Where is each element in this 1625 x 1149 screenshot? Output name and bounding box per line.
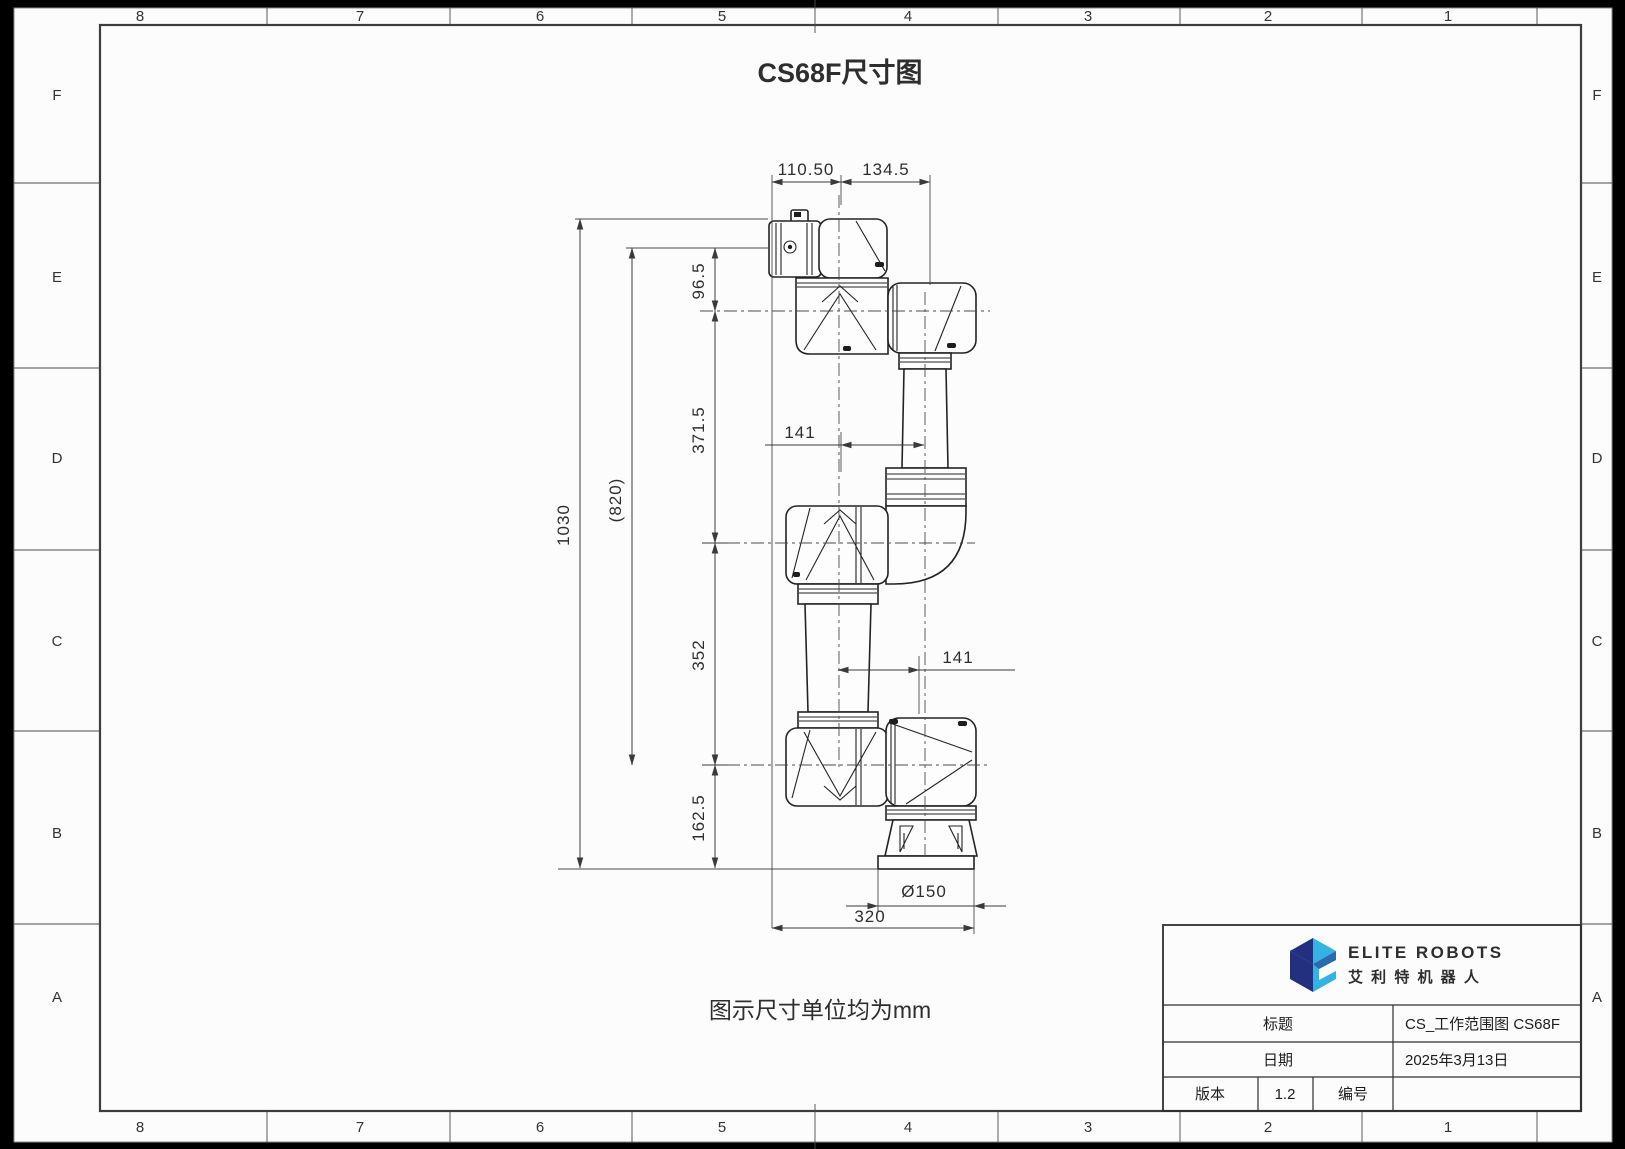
dim-dia-150: Ø150 [901,882,947,901]
grid-col-label: 2 [1264,8,1272,25]
grid-col-label: 2 [1264,1119,1272,1136]
number-label: 编号 [1338,1086,1368,1103]
cad-sheet: 8 7 6 5 4 3 2 1 8 7 6 5 4 3 2 1 F E D C … [0,0,1625,1149]
grid-row-label: D [52,450,63,467]
grid-col-label: 5 [718,1119,726,1136]
brand-name-cn: 艾 利 特 机 器 人 [1348,968,1481,986]
units-note: 图示尺寸单位均为mm [709,997,931,1023]
grid-row-label: C [52,633,63,650]
dim-134-5: 134.5 [862,160,910,179]
dim-371-5: 371.5 [689,406,708,454]
grid-col-label: 3 [1084,8,1092,25]
grid-row-label: C [1592,633,1603,650]
grid-col-label: 4 [904,8,912,25]
version-value: 1.2 [1275,1086,1296,1103]
grid-row-label: B [1592,825,1602,842]
grid-col-label: 7 [356,1119,364,1136]
grid-col-label: 1 [1444,1119,1452,1136]
dim-162-5: 162.5 [689,794,708,842]
grid-col-label: 5 [718,8,726,25]
grid-row-label: A [1592,989,1602,1006]
title-label: 标题 [1263,1016,1293,1033]
grid-row-label: B [52,825,62,842]
brand-name-en: ELITE ROBOTS [1348,943,1504,962]
grid-col-label: 1 [1444,8,1452,25]
grid-col-label: 4 [904,1119,912,1136]
grid-col-label: 6 [536,8,544,25]
grid-col-label: 6 [536,1119,544,1136]
page-title: CS68F尺寸图 [757,58,922,88]
grid-col-label: 3 [1084,1119,1092,1136]
dim-352: 352 [689,639,708,670]
drawing-sheet-stage: 8 7 6 5 4 3 2 1 8 7 6 5 4 3 2 1 F E D C … [0,0,1625,1149]
grid-row-label: F [1592,87,1601,104]
dim-141-lower: 141 [942,648,973,667]
title-value: CS_工作范围图 CS68F [1405,1016,1560,1033]
date-label: 日期 [1263,1052,1293,1069]
grid-row-label: F [52,87,61,104]
dim-96-5: 96.5 [689,262,708,299]
grid-row-label: E [1592,269,1602,286]
version-label: 版本 [1195,1086,1225,1103]
dim-320: 320 [854,907,885,926]
grid-row-label: E [52,269,62,286]
robot-drawing [769,210,977,869]
grid-col-label: 8 [136,1119,144,1136]
dim-110-50: 110.50 [778,160,835,179]
date-value: 2025年3月13日 [1405,1052,1508,1069]
dim-820: (820) [606,478,625,523]
grid-col-label: 8 [136,8,144,25]
dim-1030: 1030 [554,504,573,546]
grid-row-label: A [52,989,62,1006]
grid-col-label: 7 [356,8,364,25]
dim-141-upper: 141 [784,423,815,442]
grid-row-label: D [1592,450,1603,467]
